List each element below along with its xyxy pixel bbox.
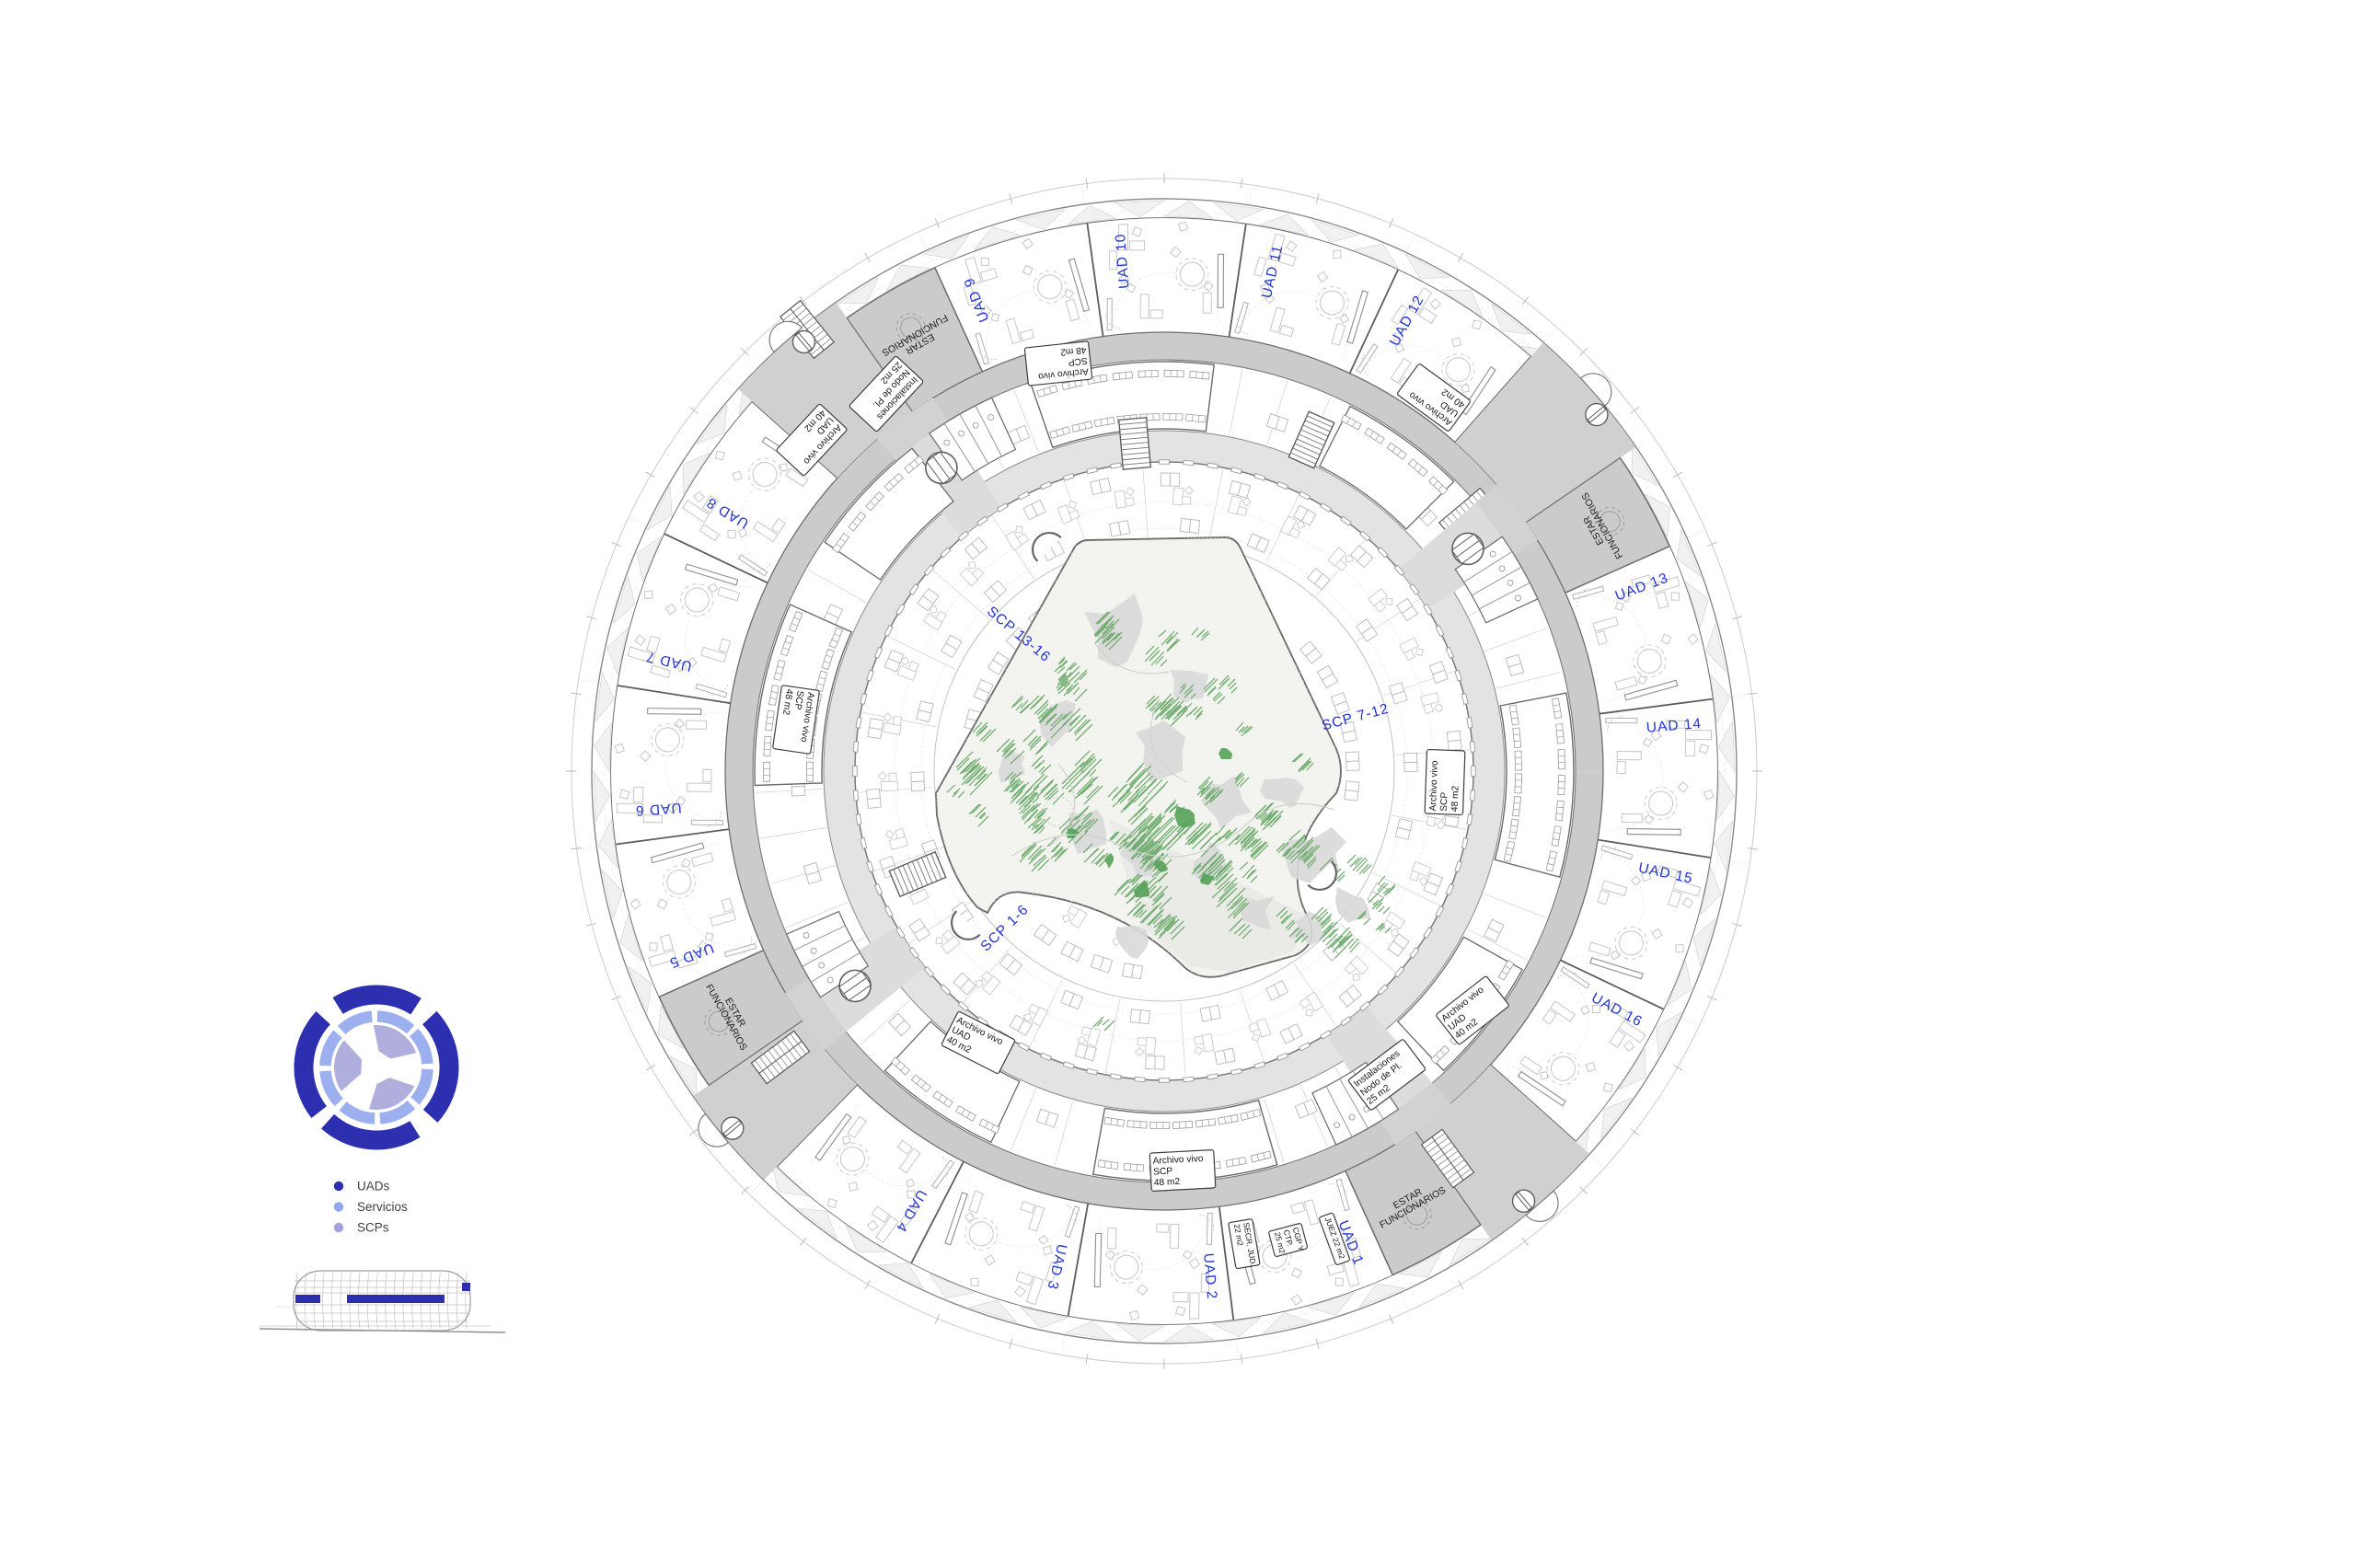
svg-text:UADs: UADs (357, 1180, 390, 1193)
svg-text:SCPs: SCPs (357, 1221, 389, 1235)
svg-text:SCP: SCP (1439, 791, 1450, 812)
svg-text:48 m2: 48 m2 (1450, 785, 1461, 812)
svg-text:UAD 6: UAD 6 (634, 800, 682, 818)
svg-text:Servicios: Servicios (357, 1200, 408, 1214)
svg-text:Archivo vivo: Archivo vivo (1428, 760, 1440, 812)
svg-text:SCP: SCP (1153, 1166, 1173, 1177)
svg-text:48 m2: 48 m2 (1154, 1177, 1181, 1188)
